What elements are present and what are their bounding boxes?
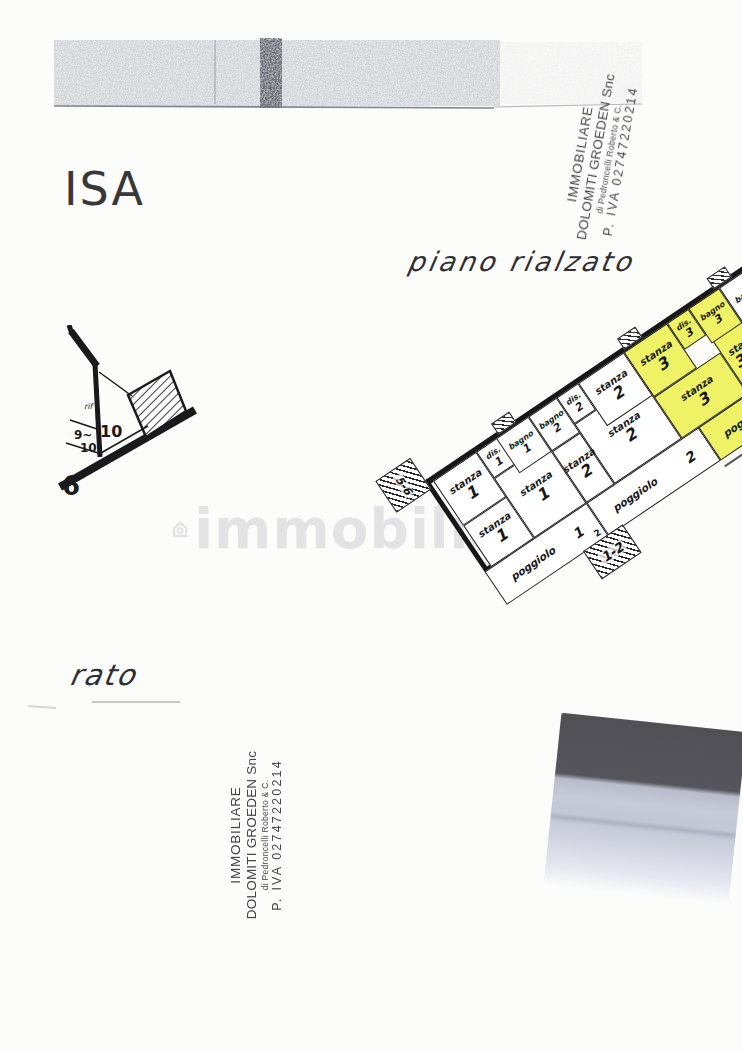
room-number: 1 [520, 442, 532, 455]
room-number: 3 [654, 355, 672, 374]
room-number: 2 [609, 384, 627, 403]
underline-mark [92, 701, 180, 703]
stamp-line-3: di Pedroncelli Roberto & C. [260, 750, 270, 920]
stairs-label: 1-2 [597, 539, 627, 565]
fragment-floor-plan: rif 10 9~ 10 6 [0, 325, 200, 515]
room-number: 3 [731, 352, 742, 371]
scanned-document-page: { "handwriting": { "isa": "ISA", "piano_… [0, 0, 742, 1050]
room-number: 2 [572, 400, 584, 413]
room-label: poggiolo [508, 544, 557, 583]
room-number: 1 [492, 526, 510, 545]
room-number: 1 [463, 483, 481, 502]
handwritten-isa: ISA [64, 162, 145, 216]
photo-fragment [544, 713, 742, 904]
stamp-line-1: IMMOBILIARE [228, 750, 244, 920]
room-label: poggiolo [610, 475, 659, 514]
room-number: 2 [681, 448, 698, 467]
stamp-bottom-left: IMMOBILIARE DOLOMITI GROEDEN Snc di Pedr… [228, 750, 300, 920]
room-number: 1 [569, 523, 586, 542]
room-number: 2 [577, 462, 595, 481]
handwritten-rato: rato [67, 658, 140, 692]
room-number: 2 [550, 421, 562, 434]
room-label: bagno [733, 283, 742, 305]
pen-mark [28, 705, 56, 708]
room-number: 3 [683, 326, 695, 339]
fragment-label-rif: rif [84, 402, 95, 411]
fragment-room-10: 10 [100, 422, 122, 441]
fragment-room-10b: 10 [80, 441, 97, 455]
stamp-line-2: DOLOMITI GROEDEN Snc [244, 750, 260, 920]
room-number: 3 [695, 390, 713, 409]
room-number: 3 [711, 312, 723, 325]
room-number: 2 [622, 426, 640, 445]
fragment-corner-6: 6 [62, 471, 80, 501]
floor-plan-piano-rialzato: stanza 1 stanza 1 dis. 1 bagno 1 stanza … [433, 218, 742, 655]
stairs-label: 5-6 [392, 472, 414, 498]
scan-noise-band [52, 36, 644, 114]
room-number: 1 [534, 485, 552, 504]
fragment-room-9: 9~ [74, 428, 92, 442]
room-number: 1 [492, 455, 504, 468]
stamp-line-4: P. IVA 02747220214 [270, 750, 285, 920]
